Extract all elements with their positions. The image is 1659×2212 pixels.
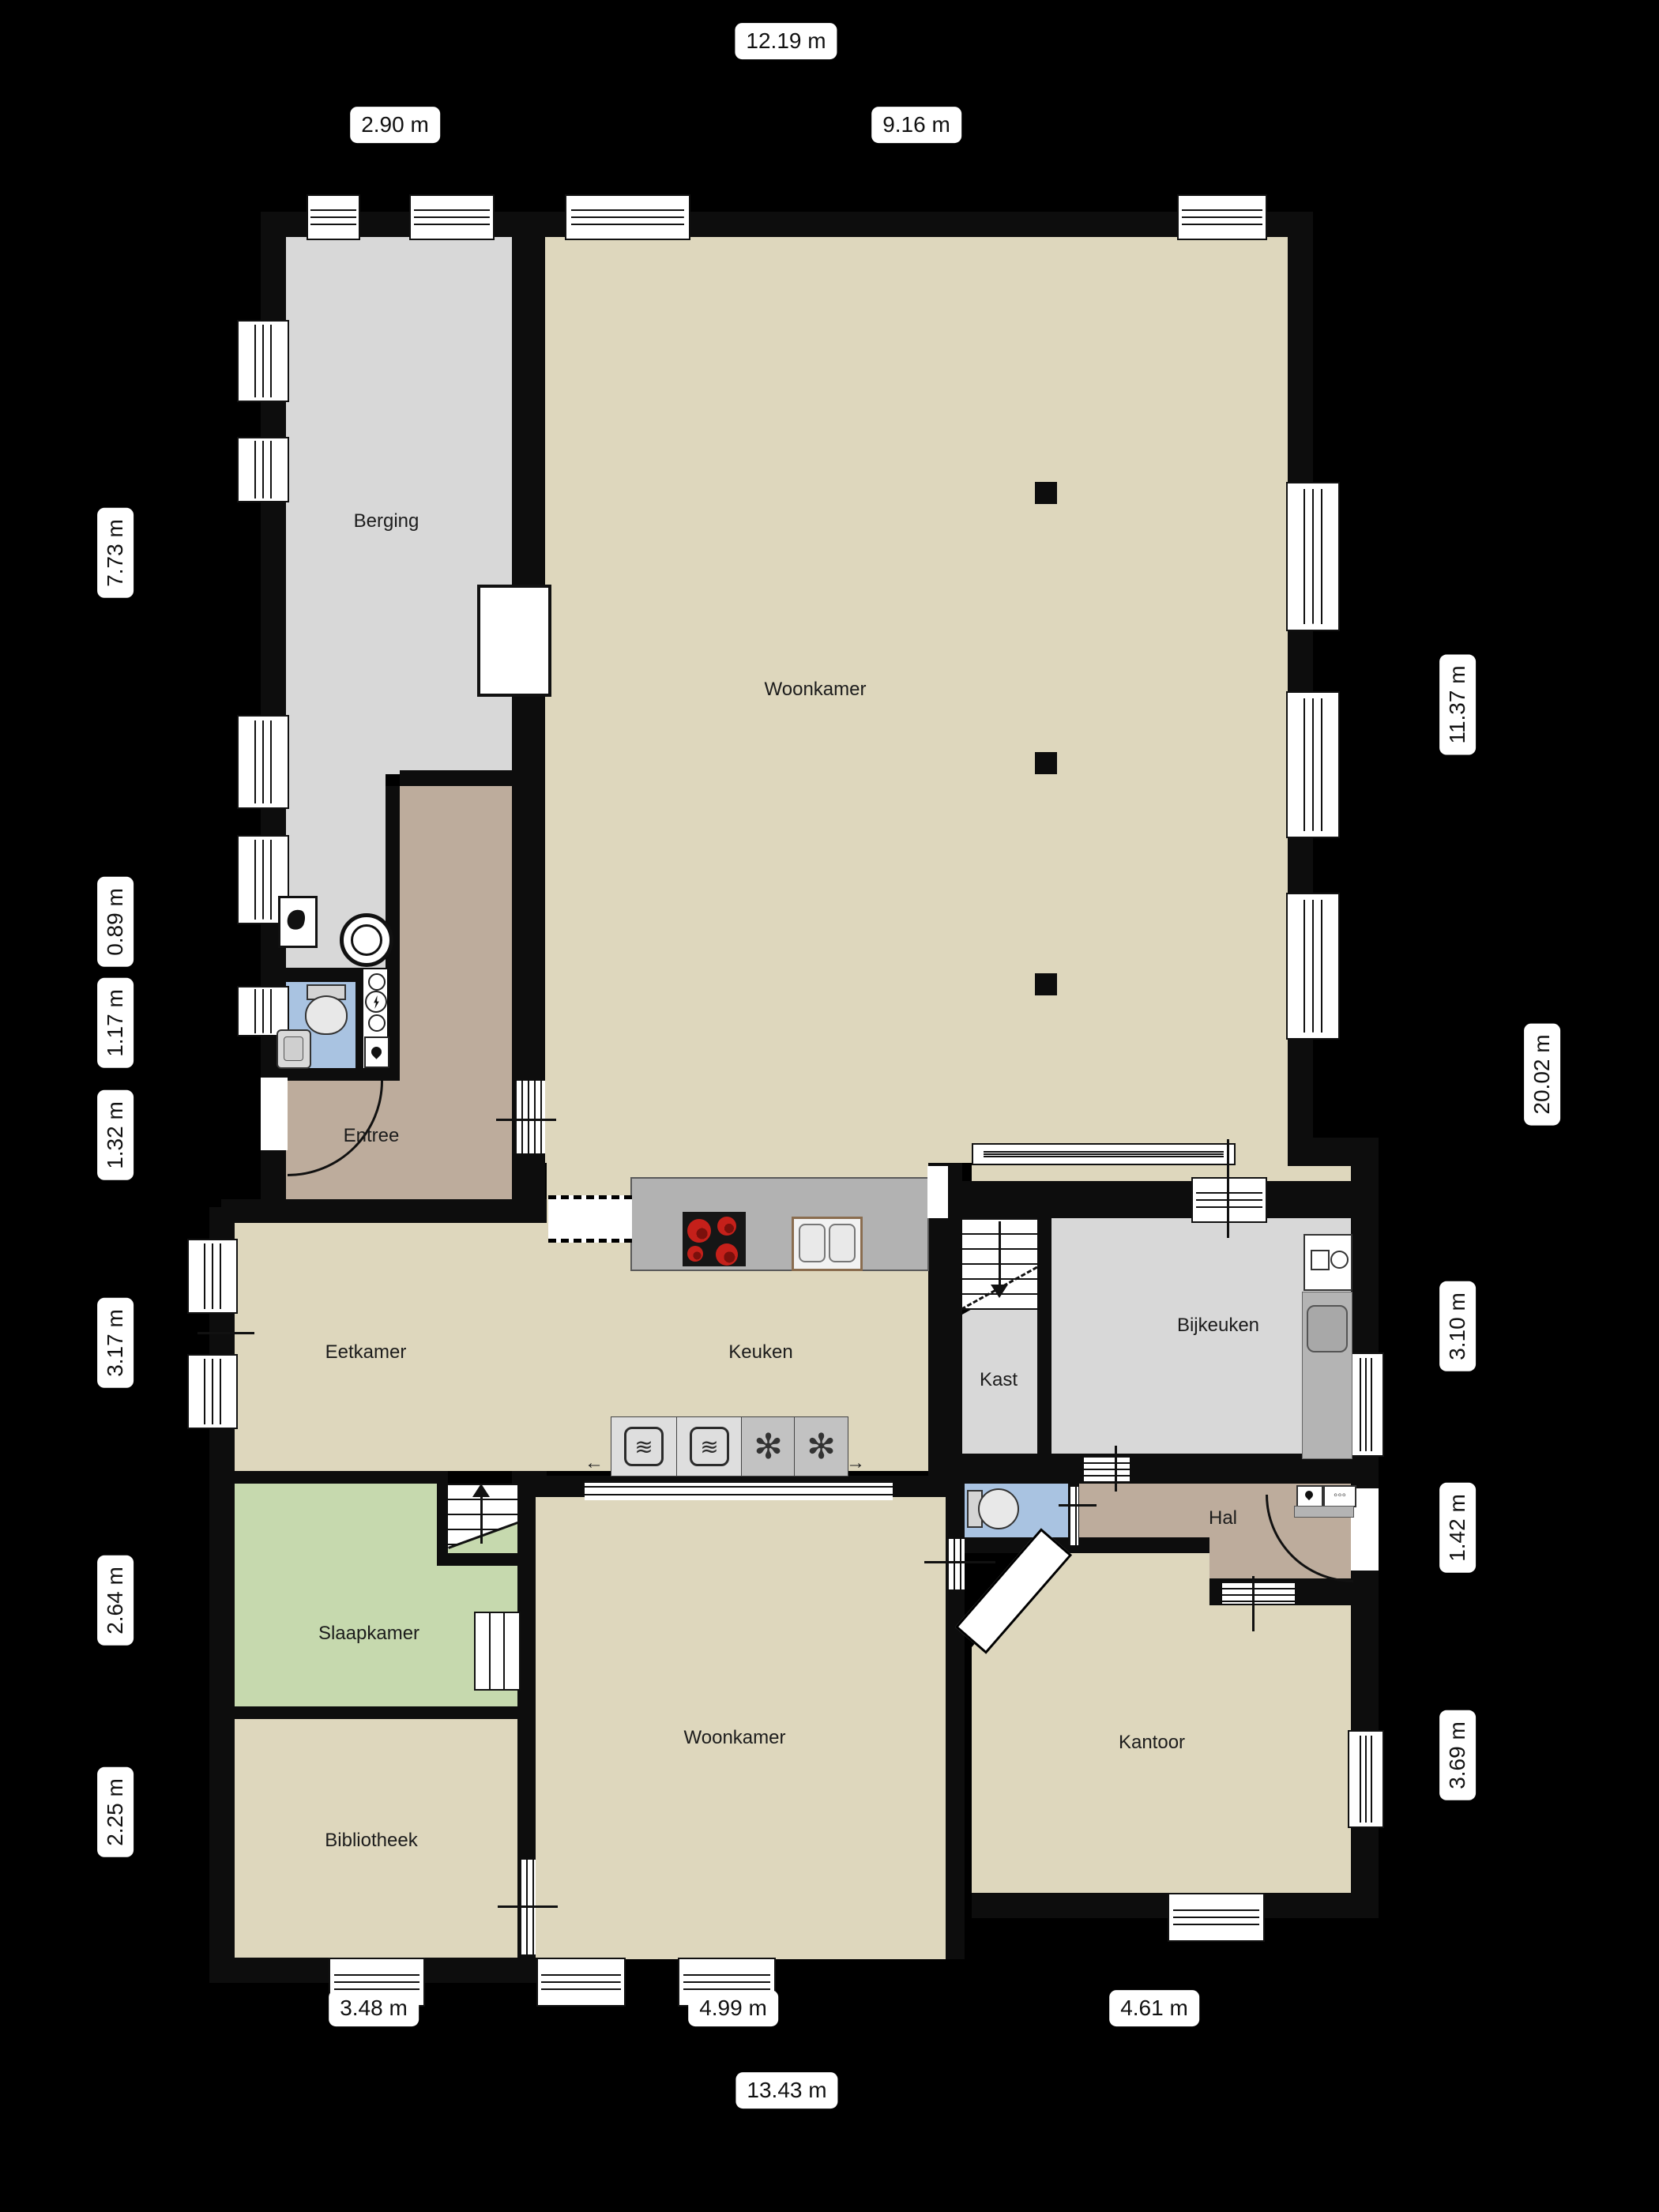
stove-icon [683,1212,746,1266]
wall [221,1706,517,1719]
door [1069,1487,1078,1545]
oven-icon: ≋ [676,1416,743,1477]
room-label-kast: Kast [980,1369,1018,1391]
dimension-label: 1.32 m [97,1090,134,1180]
counter [1302,1292,1352,1459]
room-label-entree: Entree [344,1125,400,1147]
open-passage [548,1195,632,1243]
toilet-icon [305,984,346,1033]
dimension-label: 7.73 m [97,508,134,598]
room-floor-woonkamer [545,237,1288,1163]
burner-icon [717,1217,736,1236]
window [1177,194,1267,240]
wall [1037,1218,1051,1458]
wall [221,1199,547,1223]
wall [1288,1138,1379,1166]
wall-niche [477,585,551,697]
door [947,1539,965,1589]
room-label-bibliotheek: Bibliotheek [325,1830,417,1852]
window [307,194,360,240]
window [237,715,289,809]
dimension-label: 2.64 m [97,1556,134,1646]
wall [893,1476,946,1497]
room-label-eetkamer: Eetkamer [325,1341,407,1364]
dimension-tick [496,1119,556,1121]
structural-column [1035,482,1057,504]
window [237,320,289,402]
window [565,194,690,240]
kitchen-sink-icon [792,1217,863,1271]
dimension-label: 3.48 m [329,1990,419,2026]
door [1084,1456,1130,1482]
wall [437,1553,527,1566]
window [972,1143,1236,1165]
wall [536,1476,585,1497]
window [409,194,495,240]
window [1348,1730,1384,1828]
toilet-icon [967,1488,1019,1528]
kitchen-island-counter [630,1177,929,1271]
wall [512,237,545,1223]
dimension-label: 2.25 m [97,1767,134,1857]
window [536,1958,626,2007]
dimension-tick [498,1905,558,1908]
water-meter-icon [364,1036,389,1068]
dimension-label: 0.89 m [97,877,134,967]
wall-opening [927,1166,948,1218]
dimension-tick [1252,1576,1255,1631]
window [1286,482,1340,631]
wall [209,1207,235,1983]
dimension-tick [924,1561,995,1563]
dimension-label: 4.61 m [1109,1990,1199,2026]
dimension-tick [1227,1139,1229,1238]
burner-icon [687,1219,711,1243]
dimension-tick [1059,1504,1097,1507]
slide-arrow-icon: ← [585,1452,604,1474]
burner-icon [716,1243,738,1266]
dimension-tick [197,1332,254,1334]
room-label-berging: Berging [354,510,419,532]
boiler-icon [340,913,393,967]
window [187,1354,238,1429]
dimension-label: 1.42 m [1439,1483,1476,1573]
dimension-label: 11.37 m [1439,654,1476,754]
dimension-label: 3.69 m [1439,1710,1476,1800]
meter-icon [368,973,386,991]
dimension-label: 20.02 m [1524,1023,1560,1125]
door [515,1081,545,1153]
room-label-bijkeuken: Bijkeuken [1177,1315,1259,1337]
freezer-icon: ✻ [741,1416,796,1477]
room-label-hal: Hal [1209,1507,1237,1529]
wardrobe [474,1612,521,1691]
wall [400,770,512,786]
wall-opening [261,1078,288,1150]
wall [946,1181,1351,1218]
dimension-label: 13.43 m [735,2072,837,2109]
glass-wall [585,1480,893,1500]
room-label-keuken: Keuken [728,1341,792,1364]
dimension-label: 9.16 m [871,107,961,143]
room-label-woonkamer-2: Woonkamer [684,1727,786,1749]
dimension-label: 3.10 m [1439,1281,1476,1371]
room-label-woonkamer: Woonkamer [765,679,867,701]
dimension-label: 1.17 m [97,978,134,1068]
door [1222,1582,1295,1604]
slide-arrow-icon: → [846,1452,865,1474]
dimension-label: 3.17 m [97,1298,134,1388]
wall [946,1454,1351,1484]
window [1348,1352,1384,1457]
sink-icon [276,1029,311,1069]
window [1168,1893,1265,1942]
window [1286,691,1340,838]
room-label-kantoor: Kantoor [1119,1732,1185,1754]
heater-icon [278,896,318,948]
window [187,1239,238,1314]
room-floor-corridor [400,786,512,1081]
electric-meter-icon [365,991,387,1013]
window [1191,1177,1267,1223]
dimension-label: 12.19 m [735,23,837,59]
structural-column [1035,973,1057,995]
freezer-icon: ✻ [794,1416,848,1477]
oven-icon: ≋ [611,1416,677,1477]
floorplan-canvas: ≋ ≋ ✻ ✻ ← → [0,0,1659,2212]
wall [437,1471,448,1566]
window [237,437,289,502]
dimension-tick [1115,1446,1117,1492]
stairs-up-arrow-icon [472,1484,490,1497]
burner-icon [687,1246,703,1262]
sink-icon [1307,1305,1348,1352]
structural-column [1035,752,1057,774]
wall [221,1471,446,1484]
washing-machine-icon [1303,1234,1352,1291]
dimension-label: 4.99 m [688,1990,778,2026]
stairs-down-arrow-icon [991,1285,1008,1298]
meter-icon [368,1014,386,1032]
dimension-label: 2.90 m [350,107,440,143]
room-label-slaapkamer: Slaapkamer [318,1623,419,1645]
wall [946,1454,965,1959]
window [1286,893,1340,1040]
